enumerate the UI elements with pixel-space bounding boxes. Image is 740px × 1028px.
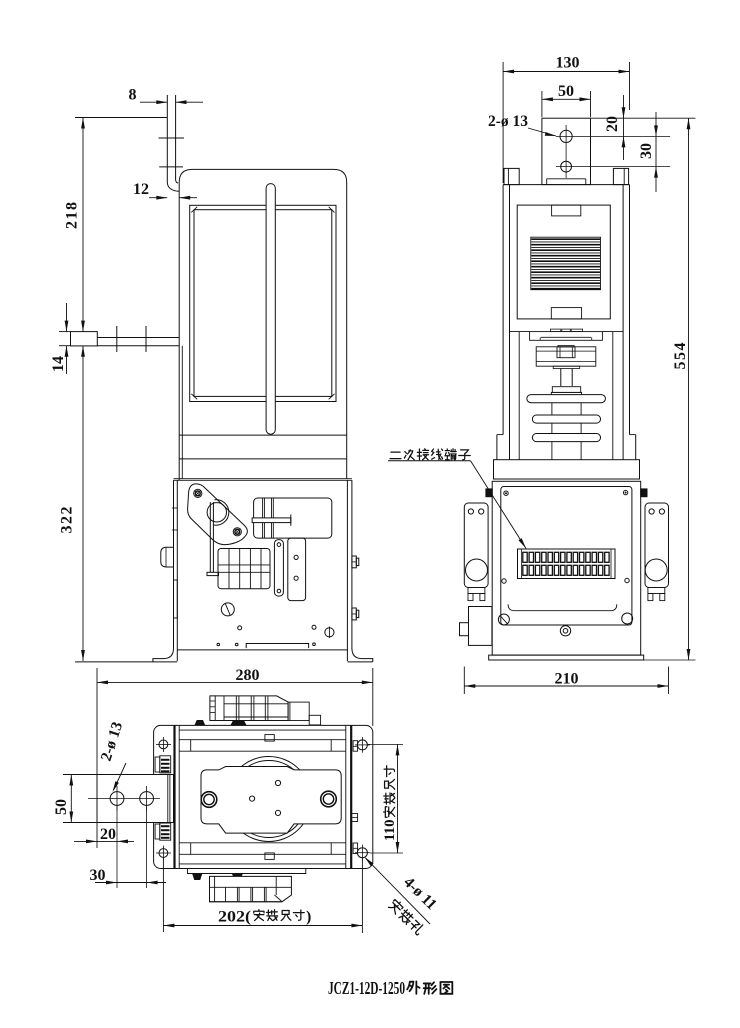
svg-text:14: 14: [50, 356, 67, 372]
svg-text:110: 110: [382, 819, 398, 841]
svg-text:50: 50: [558, 83, 574, 100]
svg-text:210: 210: [555, 671, 579, 688]
svg-text:218: 218: [64, 201, 81, 230]
svg-text:8: 8: [129, 87, 137, 104]
svg-text:30: 30: [90, 867, 106, 884]
svg-text:130: 130: [556, 55, 580, 72]
svg-text:554: 554: [672, 341, 689, 370]
svg-text:JCZ1-12D-1250: JCZ1-12D-1250: [328, 978, 405, 998]
svg-text:202(: 202(: [218, 909, 251, 926]
svg-text:12: 12: [133, 181, 149, 198]
svg-text:): ): [306, 909, 311, 926]
svg-text:322: 322: [59, 505, 76, 534]
svg-text:20: 20: [100, 826, 116, 843]
svg-text:30: 30: [638, 143, 655, 159]
svg-text:20: 20: [604, 116, 621, 132]
svg-text:280: 280: [236, 667, 260, 684]
svg-text:2-ø 13: 2-ø 13: [488, 113, 528, 130]
svg-text:50: 50: [53, 799, 70, 815]
